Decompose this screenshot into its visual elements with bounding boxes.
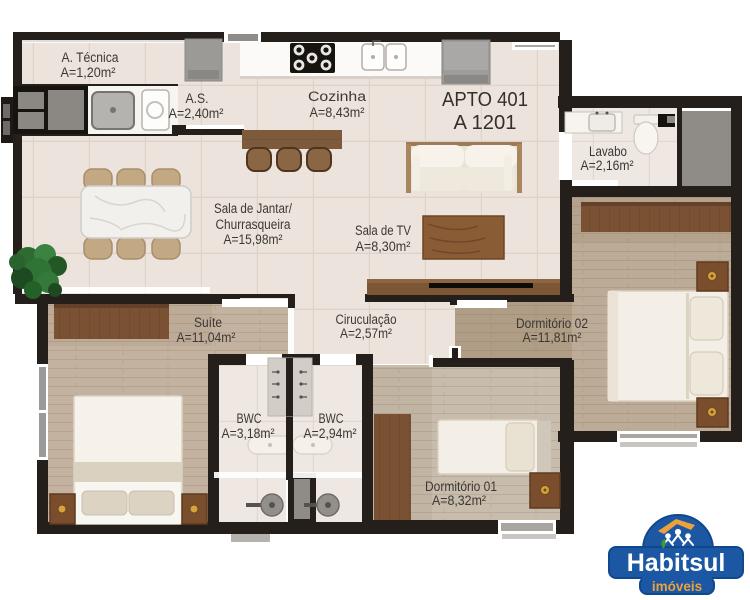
svg-text:Habitsul: Habitsul — [627, 549, 726, 577]
svg-text:A=3,18m²: A=3,18m² — [222, 426, 275, 441]
svg-text:A=2,57m²: A=2,57m² — [340, 326, 392, 341]
svg-text:A=11,81m²: A=11,81m² — [523, 330, 582, 345]
svg-text:A=2,94m²: A=2,94m² — [304, 426, 357, 441]
svg-text:Churrasqueira: Churrasqueira — [216, 217, 291, 232]
svg-text:Dormitório 01: Dormitório 01 — [425, 479, 497, 494]
svg-text:A=2,16m²: A=2,16m² — [581, 158, 634, 173]
svg-text:Sala de TV: Sala de TV — [355, 223, 411, 238]
svg-text:imóveis: imóveis — [652, 579, 702, 594]
svg-text:Dormitório 02: Dormitório 02 — [516, 316, 588, 331]
svg-text:Sala de Jantar/: Sala de Jantar/ — [214, 201, 292, 216]
svg-text:A=15,98m²: A=15,98m² — [224, 232, 283, 247]
svg-text:BWC: BWC — [237, 411, 262, 426]
svg-text:BWC: BWC — [319, 411, 344, 426]
svg-text:Lavabo: Lavabo — [589, 144, 627, 159]
svg-text:Ciruculação: Ciruculação — [336, 312, 397, 327]
svg-text:APTO 401: APTO 401 — [442, 88, 528, 111]
svg-text:A. Técnica: A. Técnica — [62, 50, 119, 65]
svg-text:A.S.: A.S. — [186, 91, 209, 106]
svg-text:A=1,20m²: A=1,20m² — [61, 65, 116, 80]
svg-text:A=11,04m²: A=11,04m² — [177, 330, 236, 345]
svg-text:A=8,30m²: A=8,30m² — [356, 239, 411, 254]
svg-text:Suíte: Suíte — [194, 315, 222, 330]
svg-text:A=2,40m²: A=2,40m² — [169, 106, 224, 121]
svg-text:A=8,32m²: A=8,32m² — [432, 493, 486, 508]
svg-text:Cozinha: Cozinha — [308, 89, 367, 104]
svg-text:A=8,43m²: A=8,43m² — [310, 105, 365, 120]
svg-text:A 1201: A 1201 — [454, 111, 517, 134]
